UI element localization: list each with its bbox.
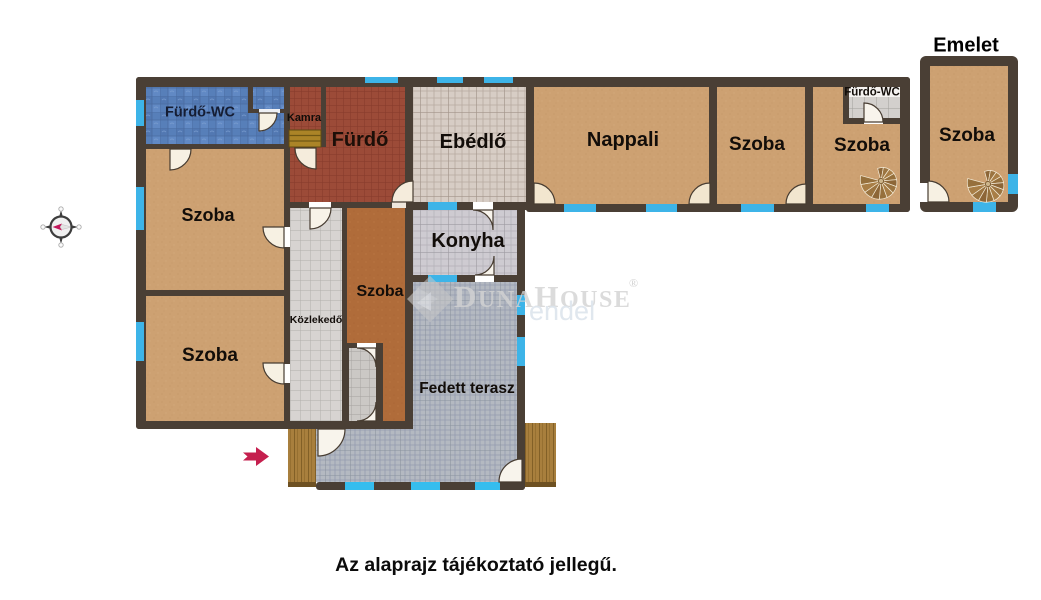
svg-text:Szoba: Szoba — [834, 135, 890, 156]
svg-text:Szoba: Szoba — [729, 134, 785, 155]
svg-text:Szoba: Szoba — [356, 283, 403, 300]
svg-text:Az alaprajz tájékoztató jelleg: Az alaprajz tájékoztató jellegű. — [335, 554, 617, 576]
svg-text:Fedett terasz: Fedett terasz — [419, 380, 515, 397]
svg-text:®: ® — [629, 276, 638, 290]
svg-text:Szoba: Szoba — [939, 125, 995, 146]
svg-text:Fürdő-WC: Fürdő-WC — [844, 87, 900, 99]
svg-text:Fürdő-WC: Fürdő-WC — [165, 105, 236, 121]
svg-text:Szoba: Szoba — [181, 205, 235, 225]
svg-text:Emelet: Emelet — [933, 35, 999, 57]
svg-text:Konyha: Konyha — [431, 230, 505, 252]
svg-text:Közlekedő: Közlekedő — [290, 314, 343, 326]
svg-text:Kamra: Kamra — [287, 112, 322, 124]
svg-text:Ebédlő: Ebédlő — [440, 131, 507, 153]
svg-text:Szoba: Szoba — [182, 345, 238, 366]
svg-text:Fürdő: Fürdő — [332, 129, 389, 151]
svg-text:Nappali: Nappali — [587, 129, 659, 151]
svg-text:endel: endel — [529, 296, 595, 326]
